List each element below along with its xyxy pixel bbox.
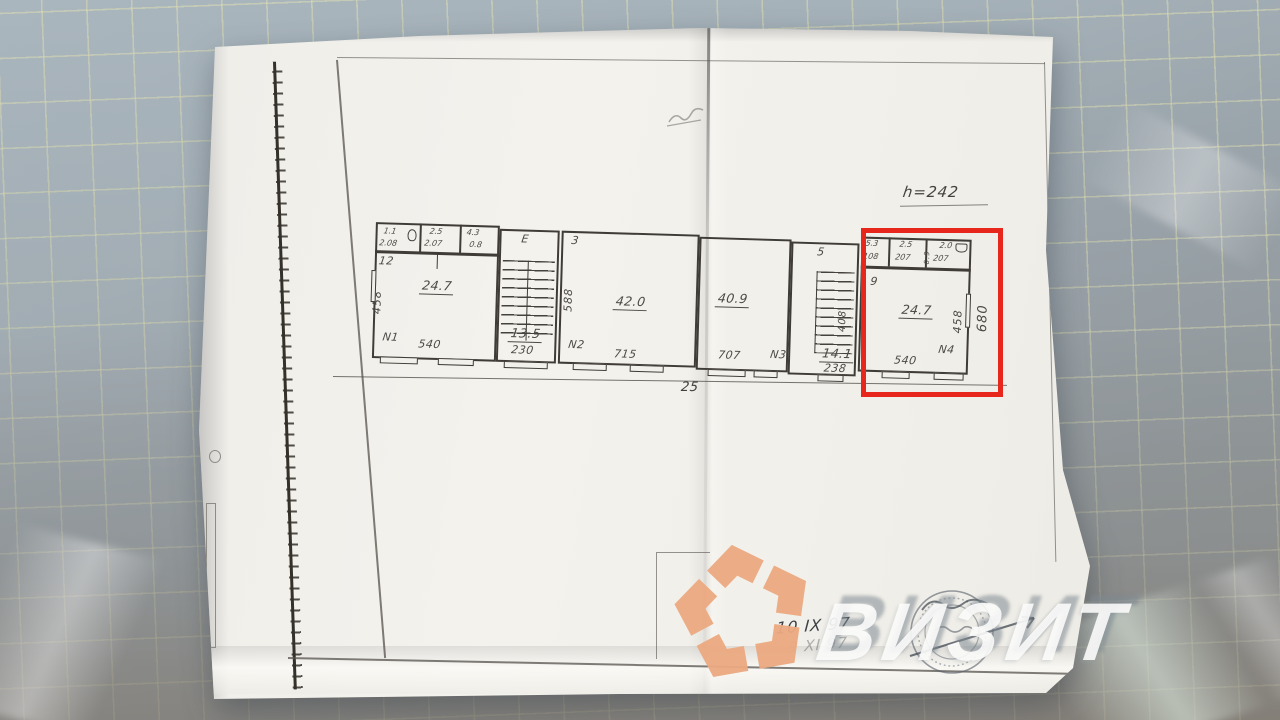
room-1-number: 12 <box>378 254 395 267</box>
room-1-cell-label: 2.08 <box>379 238 398 247</box>
room-1-cell-label: 0.8 <box>469 240 483 249</box>
stair-treads <box>814 271 854 354</box>
room-1-cell-label: 4.3 <box>466 228 480 237</box>
window <box>573 363 607 371</box>
plot-right-line <box>1044 62 1057 562</box>
faint-pencil-scribble <box>655 84 711 130</box>
plot-top-line <box>337 57 1045 65</box>
vizit-pentagon-logo <box>668 540 820 688</box>
stairwell-1-area: 13.5 <box>508 325 544 343</box>
site-plan-circle <box>209 450 221 463</box>
window <box>817 374 843 382</box>
room-2-unit-label: N2 <box>568 338 586 351</box>
outbuilding-line-vertical <box>656 553 657 659</box>
room-1-cell-label: 2.5 <box>429 227 443 236</box>
window <box>504 361 548 369</box>
window <box>630 365 664 373</box>
stairwell-1-width-dimension: 230 <box>510 343 534 357</box>
room-1-width-dimension: 540 <box>417 337 441 351</box>
room-3-unit-label: N3 <box>769 348 787 361</box>
room-2-width-dimension: 715 <box>613 347 637 361</box>
window <box>380 356 418 364</box>
room-3-area: 40.9 <box>715 290 751 308</box>
room-2-side-dimension: 588 <box>561 268 575 312</box>
window <box>438 358 474 366</box>
window <box>371 270 377 302</box>
room-1-area: 24.7 <box>419 277 455 295</box>
window <box>753 370 777 378</box>
highlight-rectangle <box>861 228 1003 397</box>
paper-top-shading <box>210 28 1055 42</box>
toilet-icon <box>407 229 416 241</box>
stairwell-2-side-dimension: 408 <box>837 292 849 332</box>
stairwell-2-width-dimension: 238 <box>823 361 847 375</box>
room-1-cell-label: 2.07 <box>424 239 443 248</box>
room-1-unit-label: N1 <box>382 330 400 343</box>
room-2-area: 42.0 <box>613 293 649 311</box>
window <box>708 369 746 377</box>
room-1-cell-label: 1.1 <box>383 226 397 235</box>
site-boundary-hatched-line <box>268 62 303 690</box>
boundary-tick-marks <box>272 62 303 690</box>
overall-length-label: 25 <box>680 380 699 395</box>
vizit-watermark-text: ВИЗИТ <box>812 592 1133 674</box>
ceiling-height-note: h=242 <box>902 183 960 201</box>
ceiling-height-underline <box>900 204 988 207</box>
room-3-width-dimension: 707 <box>717 348 741 362</box>
site-plan-strip <box>206 503 216 648</box>
photo-stage: 1.1 2.08 2.5 2.07 4.3 0.8 12 458 24.7 N1… <box>0 0 1280 720</box>
